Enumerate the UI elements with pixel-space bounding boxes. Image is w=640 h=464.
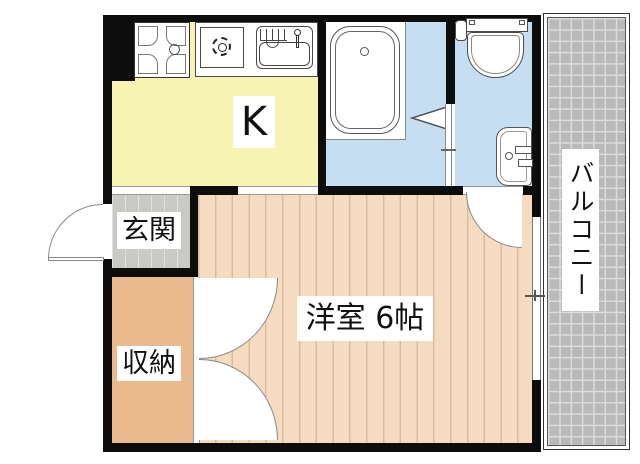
- entrance-door-panel: [48, 257, 104, 261]
- kitchen-sink-icon: [256, 26, 313, 69]
- toilet-tank-cap-left: [469, 20, 475, 25]
- sink-basin: [259, 42, 310, 66]
- wall-washroom-corner: [523, 186, 532, 195]
- burner-ring-inner: [218, 43, 227, 52]
- entrance-label: 玄関: [117, 212, 181, 249]
- entrance-door-arc: [48, 204, 103, 259]
- bathtub-drain: [360, 47, 369, 56]
- kitchen-label: K: [233, 96, 275, 148]
- wall-corner-block: [112, 15, 135, 81]
- stove-icon: [134, 22, 190, 78]
- toilet-tank: [466, 18, 528, 32]
- wall-bath-partition: [446, 22, 455, 104]
- bath-door-tick: [441, 149, 456, 151]
- drainboard: [260, 29, 287, 41]
- wall-entrance-bottom: [112, 268, 198, 277]
- wall-bottom: [103, 443, 541, 452]
- wall-stub-kitchen-room: [190, 186, 238, 195]
- stove-corner-tr: [166, 26, 186, 46]
- floorplan-canvas: K 玄関 収納 洋室 6帖 バルコニー: [0, 0, 640, 464]
- toilet-bowl-inner: [471, 35, 520, 74]
- wall-kitchen-bath: [318, 22, 326, 186]
- wall-bath-bottom: [318, 186, 463, 195]
- entrance-opening: [103, 204, 112, 259]
- bathtub-inner: [335, 31, 395, 129]
- window-center-tick-v: [534, 290, 536, 301]
- washbasin-icon: [496, 127, 532, 186]
- stove-corner-tl: [138, 26, 158, 46]
- stove-corner-bl: [138, 54, 158, 74]
- toilet-tank-cap-right: [519, 20, 525, 25]
- wall-entrance-right: [190, 195, 198, 277]
- western-room-label: 洋室 6帖: [297, 296, 433, 341]
- stove-knob: [169, 44, 180, 55]
- washbasin-faucet-upper: [515, 146, 532, 154]
- balcony-label: バルコニー: [562, 149, 599, 311]
- washbasin-faucet-lower: [518, 159, 533, 167]
- wall-right-upper: [532, 15, 541, 217]
- washbasin-drain: [505, 152, 513, 160]
- stove-corner-br: [166, 54, 186, 74]
- gas-burner-icon: [200, 27, 244, 68]
- bathtub-icon: [330, 26, 400, 134]
- wall-right-lower: [532, 380, 541, 452]
- bath-door-panel: [445, 104, 452, 186]
- storage-label: 収納: [117, 346, 181, 381]
